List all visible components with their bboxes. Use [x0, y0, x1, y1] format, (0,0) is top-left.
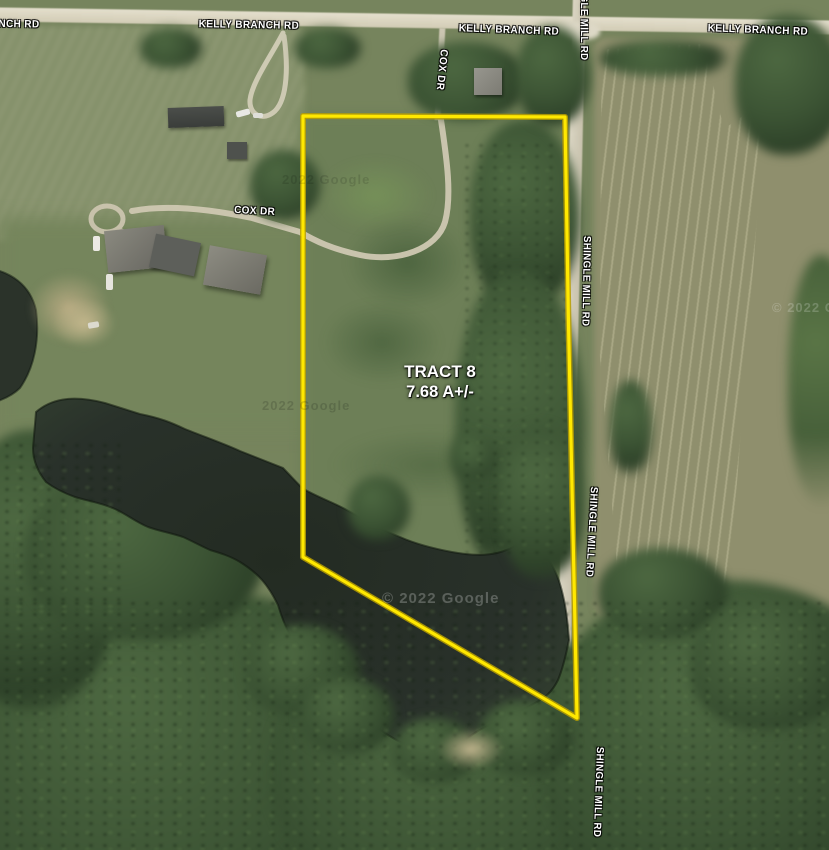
- road-label-shingle-mill-1: SHINGLE MILL RD: [579, 236, 592, 327]
- road-label-branch-rd-partial: BRANCH RD: [0, 17, 40, 30]
- google-watermark-faint-2: 2022 Google: [282, 172, 370, 187]
- tract-label: TRACT 8 7.68 A+/-: [372, 362, 508, 402]
- boundary-svg: [0, 0, 829, 850]
- google-watermark-faint-1: 2022 Google: [262, 398, 350, 413]
- tract-acreage: 7.68 A+/-: [372, 382, 508, 402]
- tract-title: TRACT 8: [372, 362, 508, 382]
- tract-boundary-casing: [303, 116, 577, 718]
- road-label-shingle-mill-top: SHINGLE MILL RD: [578, 0, 589, 60]
- google-watermark-faint-3: © 2022 Google: [772, 300, 829, 315]
- google-watermark: © 2022 Google: [382, 590, 499, 607]
- tract-boundary: [303, 116, 577, 718]
- road-label-cox-dr-horizontal: COX DR: [234, 204, 276, 218]
- road-label-kelly-branch-1: KELLY BRANCH RD: [199, 18, 300, 32]
- satellite-map[interactable]: BRANCH RD KELLY BRANCH RD KELLY BRANCH R…: [0, 0, 829, 850]
